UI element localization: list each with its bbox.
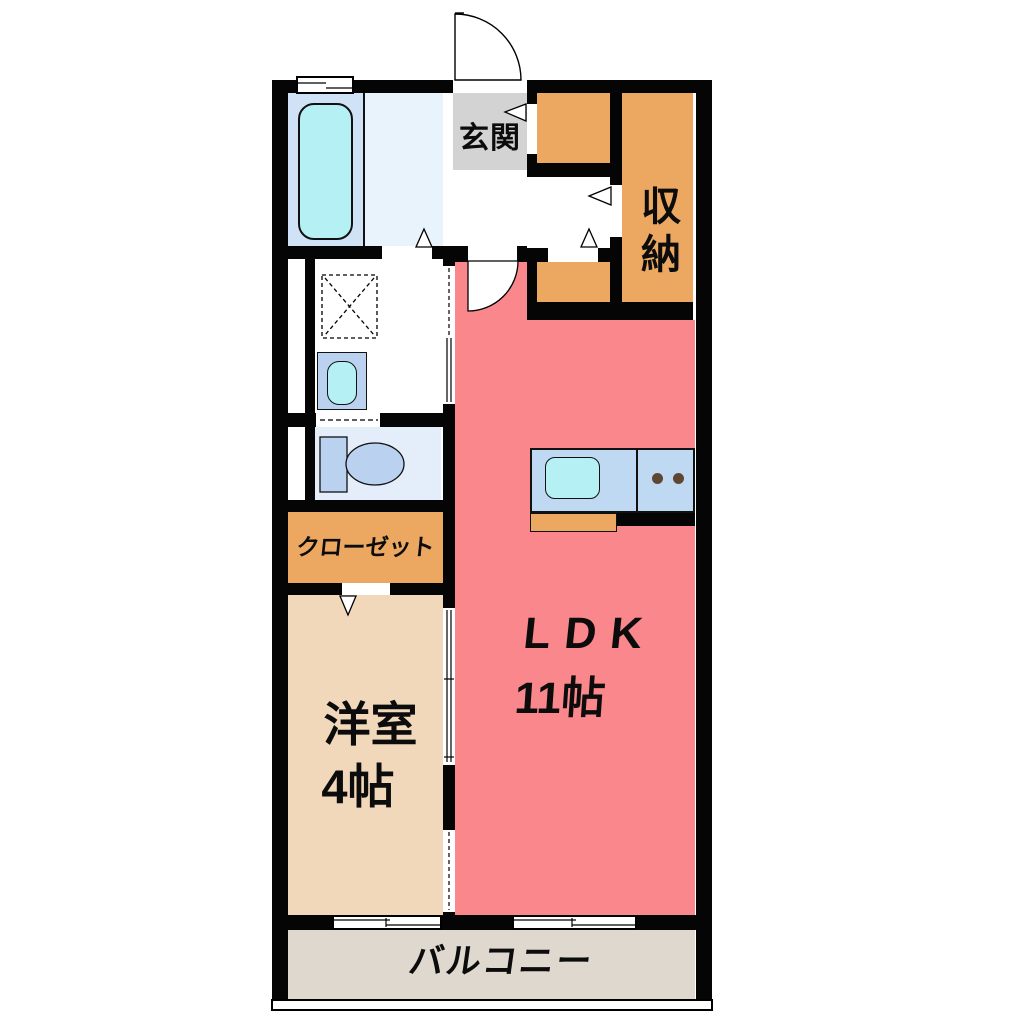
balcony-edge-rail — [271, 999, 713, 1011]
shoe-cabinet-upper — [537, 92, 610, 163]
entrance-label: 玄関 — [453, 123, 527, 155]
toilet-floor — [315, 427, 441, 500]
floorplan-canvas: 玄関 収納 クローゼット 洋室 4帖 LDK 11帖 バルコニー — [0, 0, 1020, 1020]
stove-burner-left — [652, 473, 663, 484]
wall-under-upper-cabinet — [527, 163, 612, 177]
shoe-cabinet-lower — [537, 262, 610, 302]
balcony-window-west — [332, 915, 442, 930]
kitchen-sink — [545, 457, 600, 499]
wall-storage-left-upper — [610, 92, 622, 185]
stove-burner-right — [673, 473, 684, 484]
entrance-swing-door-icon — [455, 14, 521, 80]
hall-cabinet-wedge-icon — [581, 229, 597, 247]
bathroom-window — [296, 76, 354, 94]
bathroom-divider-line — [363, 93, 365, 246]
washroom-sink-basin — [327, 361, 357, 405]
washing-machine-pan-icon — [322, 275, 377, 338]
kitchen-cabinet-strip — [530, 513, 617, 532]
ldk-floor-upper — [455, 262, 527, 915]
balcony-label: バルコニー — [348, 944, 653, 981]
bathroom-floor-area — [364, 93, 443, 246]
wall-right — [696, 80, 712, 1001]
toilet-sliding-door — [316, 413, 380, 427]
bathtub — [298, 103, 353, 240]
bathroom-door-opening — [382, 246, 432, 259]
western-room-size-label: 4帖 — [288, 762, 428, 811]
western-ldk-sliding-door-2 — [443, 830, 455, 912]
ldk-size-label: 11帖 — [493, 676, 626, 722]
closet-door-opening — [342, 583, 390, 595]
ldk-door-opening — [468, 246, 517, 262]
kitchen-counter-divider — [636, 448, 638, 513]
wall-center-divider-b — [443, 404, 455, 608]
western-room-floor — [288, 595, 443, 915]
ldk-label: LDK — [498, 611, 683, 657]
kitchen-wall-step — [617, 513, 695, 526]
storage-label: 収納 — [636, 148, 678, 318]
pipe-shaft — [288, 259, 305, 500]
wall-toilet-bottom — [272, 500, 455, 512]
balcony-window-ldk — [512, 915, 637, 930]
storage-door-wedge-icon — [589, 187, 611, 205]
western-room-label: 洋室 — [288, 700, 453, 749]
storage-door-opening — [610, 185, 622, 237]
entrance-cabinet-opening — [527, 104, 537, 154]
closet-label: クローゼット — [287, 535, 445, 559]
hall-cabinet-opening — [548, 248, 598, 262]
wall-left — [272, 80, 288, 1001]
wall-shaft — [305, 259, 315, 500]
entrance-doorway-opening — [453, 80, 527, 93]
washroom-sliding-door — [443, 266, 455, 404]
